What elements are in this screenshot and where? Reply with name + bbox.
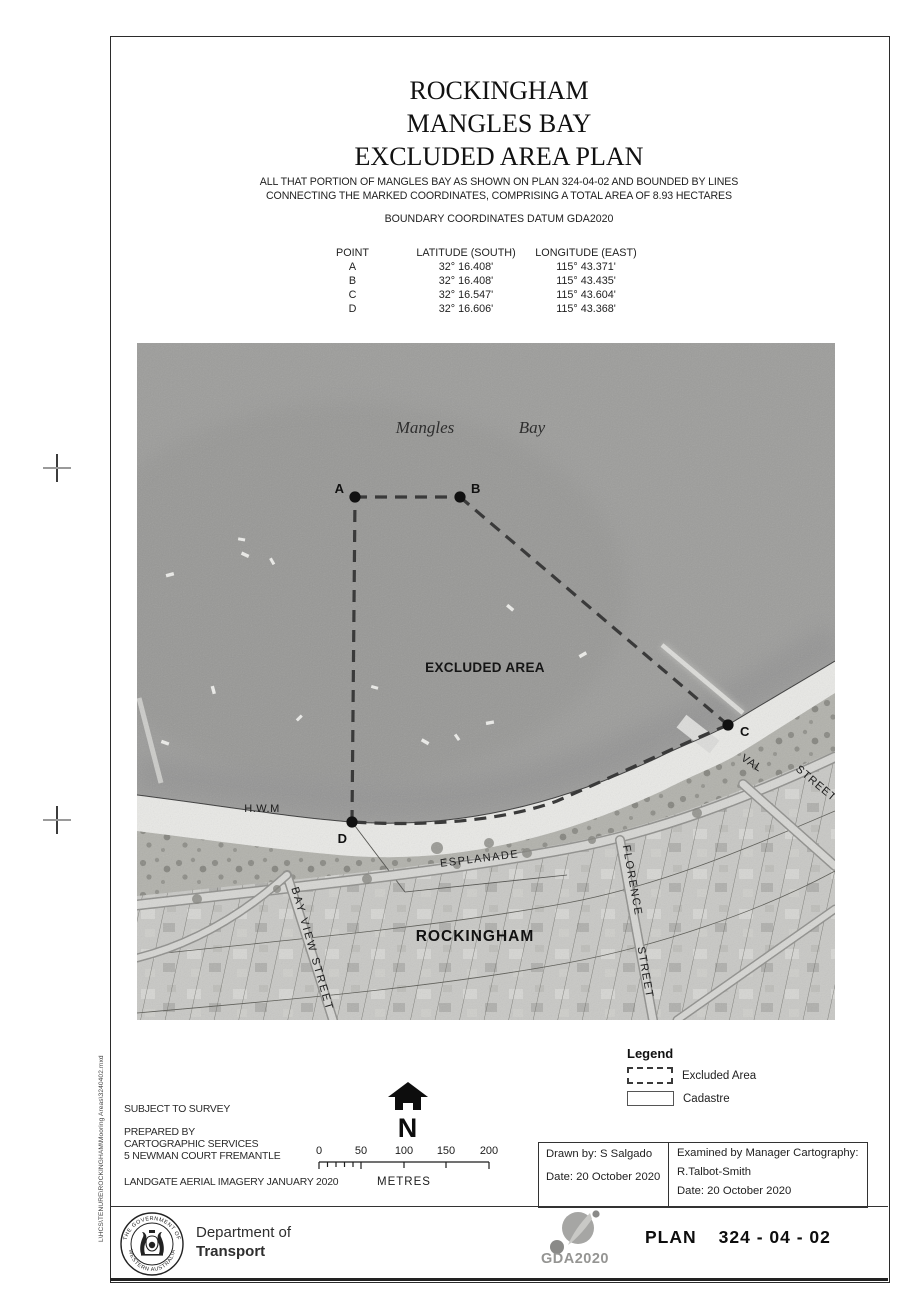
point-id: A [300,260,405,274]
scale-tick-200: 200 [480,1145,498,1157]
gda2020-logo-icon: GDA2020 [538,1207,616,1267]
point-a-marker [349,491,360,502]
examiner-name: R.Talbot-Smith [677,1166,859,1178]
title-line-2: MANGLES BAY [110,107,888,140]
table-row: D 32° 16.606' 115° 43.368' [300,302,645,316]
registration-cross-icon [43,806,71,834]
examined-date: Date: 20 October 2020 [677,1185,859,1197]
bay-name-2: Bay [519,418,546,437]
point-c-label: C [740,724,750,739]
subject-to-survey-note: SUBJECT TO SURVEY [124,1104,230,1115]
dept-line-2: Transport [196,1242,291,1261]
examined-by: Examined by Manager Cartography: [677,1147,859,1159]
cadastre-swatch [627,1091,674,1106]
point-b-marker [454,491,465,502]
hwm-label: H.W.M [244,803,280,815]
point-c-marker [722,719,733,730]
latitude-value: 32° 16.408' [405,274,527,288]
prepared-by-line1: PREPARED BY [124,1127,195,1138]
point-id: D [300,302,405,316]
gda2020-wordmark: GDA2020 [541,1251,609,1267]
file-path-vertical: L\HCS\TENURE\ROCKINGHAM\Mooring Areas\32… [98,1055,105,1242]
crest-top-text: THE GOVERNMENT OF [123,1216,182,1241]
col-header-latitude: LATITUDE (SOUTH) [405,246,527,260]
imagery-note: LANDGATE AERIAL IMAGERY JANUARY 2020 [124,1177,338,1188]
bay-name-1: Mangles [395,418,455,437]
description-line-2: CONNECTING THE MARKED COORDINATES, COMPR… [110,190,888,204]
scale-tick-0: 0 [316,1145,322,1157]
point-a-label: A [335,481,345,496]
legend-item-label: Cadastre [683,1093,730,1105]
legend: Legend Excluded Area Cadastre [627,1046,847,1113]
legend-item-cadastre: Cadastre [627,1091,847,1106]
datum-note: BOUNDARY COORDINATES DATUM GDA2020 [110,213,888,225]
title-block-drawn-cell: Drawn by: S Salgado Date: 20 October 202… [539,1143,669,1207]
point-b-label: B [471,481,480,496]
longitude-value: 115° 43.604' [527,288,645,302]
latitude-value: 32° 16.606' [405,302,527,316]
photo-grain [137,343,835,1020]
plan-description: ALL THAT PORTION OF MANGLES BAY AS SHOWN… [110,176,888,203]
locality-label: ROCKINGHAM [416,928,535,945]
point-id: C [300,288,405,302]
point-d-marker [346,816,357,827]
legend-item-label: Excluded Area [682,1070,756,1082]
scale-unit-label: METRES [377,1176,431,1188]
scale-tick-100: 100 [395,1145,413,1157]
scale-bar: 0 50 100 150 200 METRES [312,1142,498,1192]
table-row: A 32° 16.408' 115° 43.371' [300,260,645,274]
longitude-value: 115° 43.371' [527,260,645,274]
north-letter: N [386,1116,430,1141]
drawn-by: Drawn by: S Salgado [546,1148,661,1160]
department-logo-text: Department of Transport [196,1223,291,1261]
scale-tick-150: 150 [437,1145,455,1157]
longitude-value: 115° 43.435' [527,274,645,288]
coordinates-table: POINT LATITUDE (SOUTH) LONGITUDE (EAST) … [300,246,645,316]
table-row: C 32° 16.547' 115° 43.604' [300,288,645,302]
legend-title: Legend [627,1046,847,1061]
title-block: Drawn by: S Salgado Date: 20 October 202… [538,1142,868,1208]
table-row: B 32° 16.408' 115° 43.435' [300,274,645,288]
wa-government-crest-icon: THE GOVERNMENT OF WESTERN AUSTRALIA [119,1210,185,1278]
aerial-map: Mangles Bay EXCLUDED AREA H.W.M A B C D … [137,343,835,1020]
point-id: B [300,274,405,288]
title-line-1: ROCKINGHAM [110,74,888,107]
plan-sheet: { "page": { "title_lines": ["ROCKINGHAM"… [0,0,901,1304]
longitude-value: 115° 43.368' [527,302,645,316]
svg-text:THE GOVERNMENT OF: THE GOVERNMENT OF [123,1216,182,1241]
excluded-area-swatch [627,1067,673,1084]
dept-line-1: Department of [196,1223,291,1242]
latitude-value: 32° 16.547' [405,288,527,302]
registration-cross-icon [43,454,71,482]
plan-number: PLAN 324 - 04 - 02 [645,1227,831,1248]
north-arrow: N [386,1081,430,1141]
prepared-by-line3: 5 NEWMAN COURT FREMANTLE [124,1151,280,1162]
north-arrow-icon [387,1081,429,1111]
plan-title: ROCKINGHAM MANGLES BAY EXCLUDED AREA PLA… [110,74,888,173]
excluded-area-label: EXCLUDED AREA [425,660,545,675]
plan-number-value: 324 - 04 - 02 [719,1227,831,1248]
title-block-examined-cell: Examined by Manager Cartography: R.Talbo… [669,1143,867,1207]
coordinates-header-row: POINT LATITUDE (SOUTH) LONGITUDE (EAST) [300,246,645,260]
prepared-by-line2: CARTOGRAPHIC SERVICES [124,1139,258,1150]
legend-item-excluded-area: Excluded Area [627,1067,847,1084]
latitude-value: 32° 16.408' [405,260,527,274]
title-line-3: EXCLUDED AREA PLAN [110,140,888,173]
col-header-longitude: LONGITUDE (EAST) [527,246,645,260]
drawn-date: Date: 20 October 2020 [546,1171,661,1183]
plan-word: PLAN [645,1227,697,1248]
point-d-label: D [338,831,347,846]
description-line-1: ALL THAT PORTION OF MANGLES BAY AS SHOWN… [110,176,888,190]
crest-emblem [140,1230,164,1256]
col-header-point: POINT [300,246,405,260]
scale-tick-50: 50 [355,1145,367,1157]
